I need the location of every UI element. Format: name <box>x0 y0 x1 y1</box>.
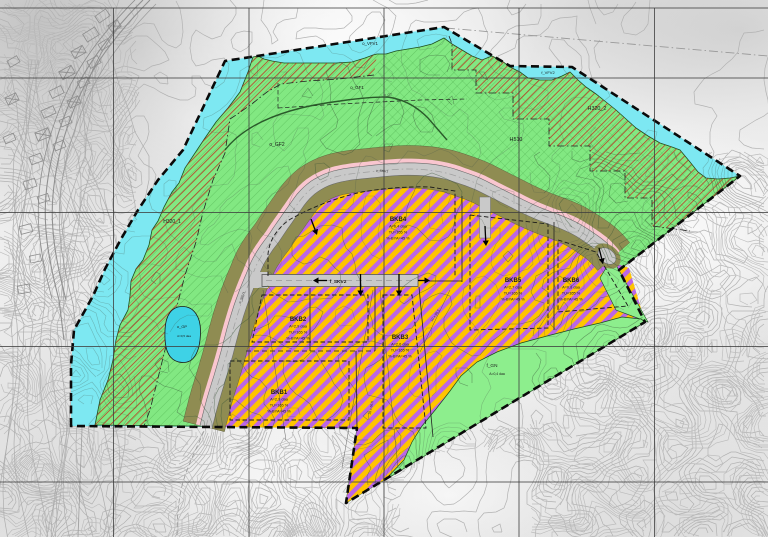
svg-text:%-BYA=45 %: %-BYA=45 % <box>501 297 525 302</box>
svg-text:A=2,9 daa: A=2,9 daa <box>270 397 289 402</box>
svg-text:%-BYA=45 %: %-BYA=45 % <box>386 236 410 241</box>
svg-text:o_GP: o_GP <box>177 324 188 329</box>
svg-text:%-BYA=45 %: %-BYA=45 % <box>388 354 412 359</box>
svg-text:f_GN: f_GN <box>487 363 498 368</box>
svg-text:BKB6: BKB6 <box>563 278 580 284</box>
svg-text:A=6,4 daa: A=6,4 daa <box>389 224 408 229</box>
svg-text:A=2,7 daa: A=2,7 daa <box>504 285 523 290</box>
svg-text:BKB5: BKB5 <box>505 278 522 284</box>
svg-text:A=0,4 daa: A=0,4 daa <box>489 372 505 376</box>
svg-text:H320_1: H320_1 <box>163 219 181 225</box>
svg-text:%-BYA=45 %: %-BYA=45 % <box>267 409 291 414</box>
svg-text:TU=165 %: TU=165 % <box>504 291 523 296</box>
svg-text:%-BYA=45 %: %-BYA=45 % <box>559 297 583 302</box>
svg-text:H320_2: H320_2 <box>588 106 607 112</box>
svg-text:H510: H510 <box>510 137 523 143</box>
svg-text:TU=165 %: TU=165 % <box>289 330 308 335</box>
svg-text:f_VFV2: f_VFV2 <box>541 70 555 75</box>
svg-text:TU=165 %: TU=165 % <box>562 291 581 296</box>
svg-text:BKB4: BKB4 <box>390 217 407 223</box>
svg-text:TU=165 %: TU=165 % <box>391 348 410 353</box>
svg-text:TU=165 %: TU=165 % <box>389 230 408 235</box>
svg-text:A=2,9 daa: A=2,9 daa <box>289 324 308 329</box>
svg-text:o_GT: o_GT <box>384 93 392 97</box>
svg-text:BKB3: BKB3 <box>392 335 409 341</box>
svg-text:o_GF2: o_GF2 <box>269 142 285 148</box>
svg-text:BKB2: BKB2 <box>290 317 307 323</box>
svg-text:A=0,8 daa: A=0,8 daa <box>562 285 581 290</box>
svg-text:A=2,6 daa: A=2,6 daa <box>391 342 410 347</box>
svg-text:A=0,5 daa: A=0,5 daa <box>177 334 191 338</box>
svg-text:o_VFV1: o_VFV1 <box>362 41 378 46</box>
svg-text:f_SKV2: f_SKV2 <box>330 279 347 285</box>
svg-text:TU=165 %: TU=165 % <box>270 403 289 408</box>
svg-text:BKB1: BKB1 <box>271 390 288 396</box>
svg-text:o_GF1: o_GF1 <box>350 85 364 90</box>
svg-text:%-BYA=45 %: %-BYA=45 % <box>286 336 310 341</box>
